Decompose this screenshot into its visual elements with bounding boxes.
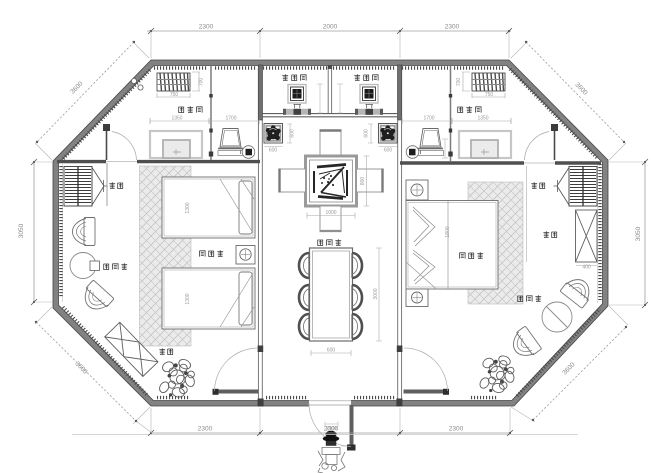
svg-text:1350: 1350 — [477, 116, 488, 122]
svg-text:1000: 1000 — [325, 210, 336, 216]
svg-text:800: 800 — [360, 177, 366, 186]
svg-text:750: 750 — [485, 92, 494, 98]
svg-text:3000: 3000 — [373, 288, 379, 299]
svg-text:1300: 1300 — [185, 293, 191, 304]
svg-text:1800: 1800 — [445, 226, 451, 237]
svg-text:600: 600 — [290, 129, 296, 138]
svg-text:3050: 3050 — [635, 226, 642, 241]
svg-text:2000: 2000 — [324, 426, 339, 433]
svg-text:600: 600 — [327, 348, 336, 354]
svg-text:700: 700 — [456, 78, 462, 87]
svg-text:1350: 1350 — [171, 116, 182, 122]
svg-text:700: 700 — [199, 78, 205, 87]
svg-text:750: 750 — [170, 92, 179, 98]
svg-text:1700: 1700 — [423, 116, 434, 122]
svg-text:1300: 1300 — [185, 202, 191, 213]
svg-text:600: 600 — [384, 148, 393, 154]
svg-text:1700: 1700 — [225, 116, 236, 122]
svg-text:400: 400 — [582, 265, 591, 271]
svg-text:600: 600 — [364, 129, 370, 138]
svg-text:2300: 2300 — [449, 426, 464, 433]
svg-text:2300: 2300 — [199, 24, 214, 31]
svg-text:2000: 2000 — [323, 24, 338, 31]
svg-text:2300: 2300 — [198, 426, 213, 433]
svg-text:2300: 2300 — [445, 24, 460, 31]
svg-text:600: 600 — [269, 148, 278, 154]
svg-text:3050: 3050 — [18, 223, 25, 238]
